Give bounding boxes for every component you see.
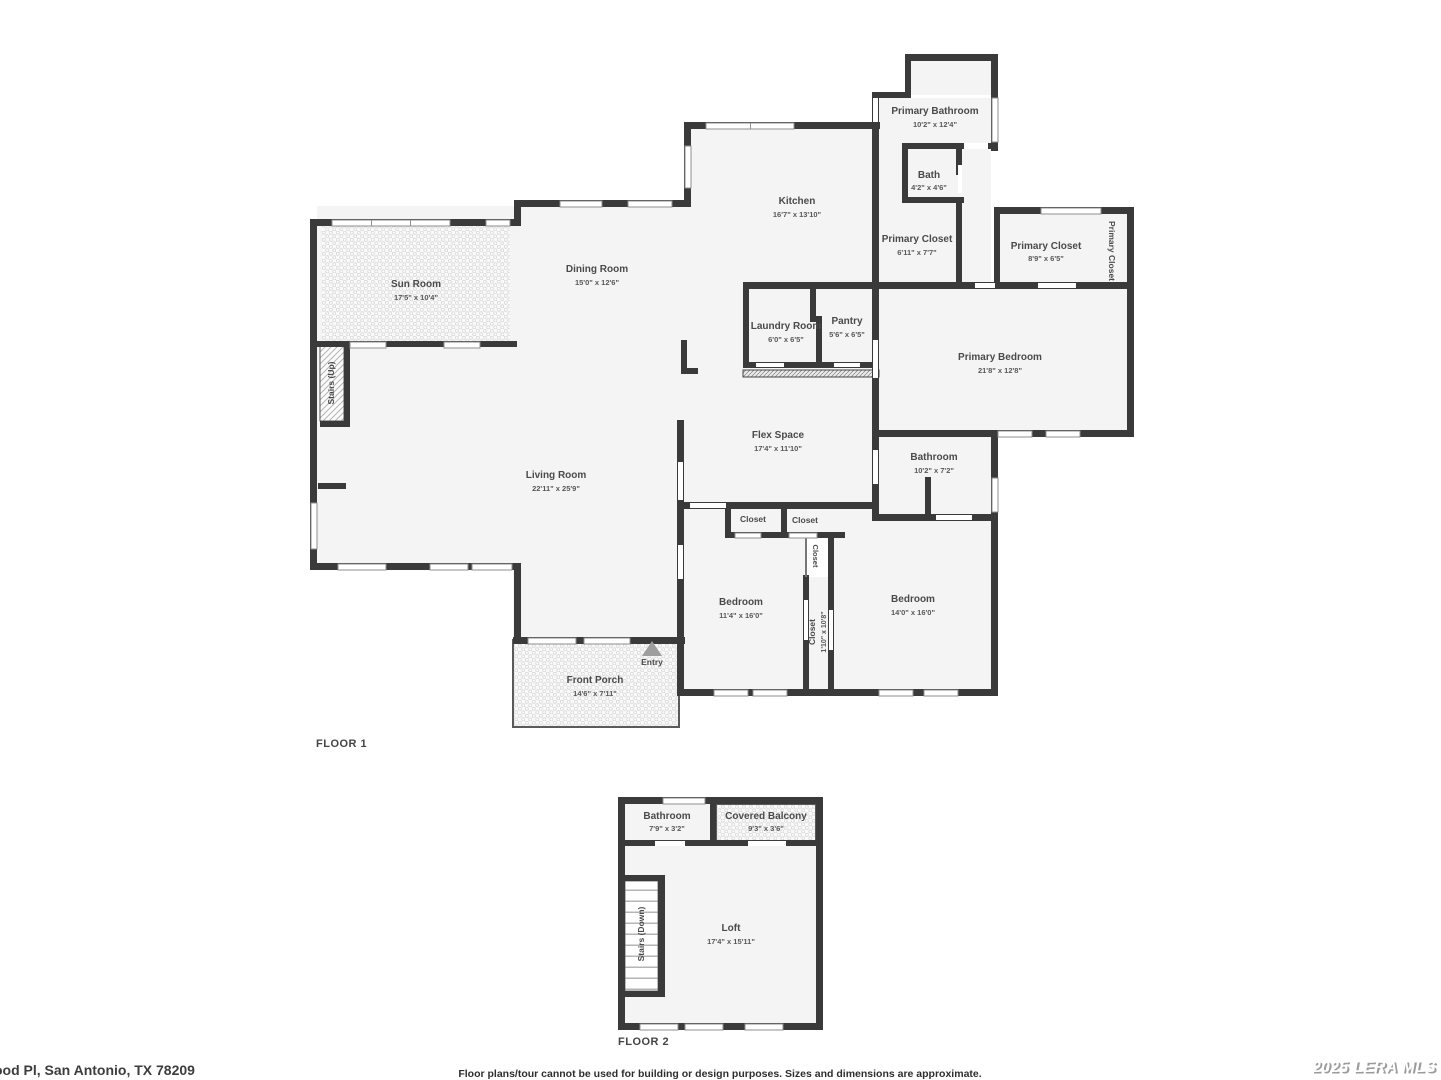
room-label-living-room: Living Room [526,470,587,481]
room-label-primary-bathroom: Primary Bathroom [891,106,978,117]
room-label-primary-bedroom: Primary Bedroom [958,352,1042,363]
floor2-title: FLOOR 2 [618,1036,669,1048]
room-dims-bedroom-1: 11'4" x 16'0" [719,611,763,620]
wall-segment [872,514,998,521]
room-label-stairs-down: Stairs (Down) [636,906,646,961]
wall-segment [344,341,350,427]
room-label-laundry-room: Laundry Room [751,321,822,332]
room-dims-bathroom-f1: 10'2" x 7'2" [914,466,954,475]
window-mullion [371,220,372,226]
window [486,220,510,226]
window [472,564,512,570]
room-label-closet-d: Closet [807,619,817,645]
wall-segment [621,875,665,881]
floor1-title: FLOOR 1 [316,738,367,750]
window [789,533,817,538]
room-label-loft: Loft [722,923,742,934]
address-text: ood Pl, San Antonio, TX 78209 [0,1062,195,1078]
room-dims-bath: 4'2" x 4'6" [911,183,947,192]
room-fill [879,146,991,286]
room-fill [680,345,874,505]
room-dims-primary-closet-1: 6'11" x 7'7" [897,248,937,257]
door-gap [1038,283,1076,288]
room-label-covered-balcony: Covered Balcony [725,811,807,822]
window [640,1024,678,1030]
room-dims-dining-room: 15'0" x 12'6" [575,278,619,287]
window [735,533,761,538]
door-gap [873,450,878,484]
window [338,564,386,570]
thin-wall-segment [805,535,807,577]
window [685,1024,723,1030]
wall-segment [710,797,716,846]
window [992,98,998,142]
wall-segment [994,207,1000,288]
window [560,201,602,207]
footer-bar: ood Pl, San Antonio, TX 78209 Floor plan… [0,1059,1438,1080]
door-gap [958,165,962,193]
room-dims-flex-space: 17'4" x 11'10" [754,444,802,453]
room-label-kitchen: Kitchen [779,196,816,207]
window [528,638,576,644]
window [745,1024,783,1030]
wall-segment [318,483,346,489]
window [879,690,913,696]
wall-segment [874,92,911,98]
room-label-bath: Bath [918,170,940,181]
door-gap [756,363,784,367]
door-gap [964,143,988,149]
room-label-stairs-up: Stairs (Up) [326,361,336,404]
wall-segment [320,421,350,427]
floorplan-image: Sun Room 17'5" x 10'4" Dining Room 15'0"… [0,0,1441,1080]
window [714,690,748,696]
wall-segment [681,368,698,374]
wall-segment [905,54,997,61]
wall-segment [677,420,684,640]
room-label-front-porch: Front Porch [567,675,624,686]
wall-segment [925,477,931,515]
window [1046,431,1080,437]
watermark-text: 2025 LERA MLS [1311,1059,1436,1076]
room-label-bedroom-1: Bedroom [719,597,763,608]
porch-hatch [716,804,816,841]
room-label-bathroom-f1: Bathroom [910,452,957,463]
window [584,638,630,644]
door-gap [873,98,878,122]
room-label-bathroom-f2: Bathroom [643,811,690,822]
room-label-primary-closet-2: Primary Closet [1011,241,1082,252]
window [430,564,468,570]
disclaimer-text: Floor plans/tour cannot be used for buil… [458,1068,981,1080]
window [311,503,317,549]
window [350,342,386,348]
room-dims-kitchen: 16'7" x 13'10" [773,210,822,219]
door-gap [936,515,972,520]
window [753,690,787,696]
room-fill [911,61,991,95]
wall-segment [956,197,962,288]
room-label-closet-c: Closet [811,545,820,568]
wall-segment [618,797,823,804]
wall-segment [514,563,521,644]
door-gap [834,363,860,367]
wall-segment [872,282,1134,289]
wall-segment [310,341,517,347]
wall-segment [658,875,665,997]
window [444,342,480,348]
room-dims-primary-closet-2: 8'9" x 6'5" [1028,254,1064,263]
wall-segment [872,122,879,288]
window [1041,208,1101,214]
room-dims-covered-balcony: 9'3" x 3'6" [748,824,784,833]
room-dims-sun-room: 17'5" x 10'4" [394,293,438,302]
room-dims-bedroom-2: 14'0" x 16'0" [891,608,935,617]
door-gap [655,841,685,846]
room-dims-front-porch: 14'6" x 7'11" [573,689,617,698]
wall-segment [816,797,823,1030]
room-dims-closet-d: 1'10" x 10'8" [821,611,828,652]
hatched-wall-strip [743,370,879,377]
room-dims-living-room: 22'11" x 25'9" [532,484,580,493]
room-dims-primary-bathroom: 10'2" x 12'4" [913,120,957,129]
door-gap [748,841,786,846]
window [628,201,672,207]
window-mullion [750,123,751,129]
door-gap [690,503,726,508]
wall-segment [1127,207,1134,437]
room-fill [879,437,992,516]
room-dims-laundry-room: 6'0" x 6'5" [768,335,804,344]
room-label-closet-a: Closet [740,514,766,524]
wall-segment [618,840,823,846]
wall-segment [621,991,665,997]
door-gap [678,545,683,579]
wall-segment [902,197,964,203]
room-label-pantry: Pantry [831,316,863,327]
wall-segment [991,437,998,695]
window [685,146,691,188]
room-dims-bathroom-f2: 7'9" x 3'2" [649,824,685,833]
door-gap [975,283,995,288]
window [663,798,705,804]
room-dims-primary-bedroom: 21'8" x 12'8" [978,366,1022,375]
window [332,220,450,226]
room-dims-loft: 17'4" x 15'11" [707,937,755,946]
room-dims-pantry: 5'6" x 6'5" [829,330,865,339]
room-label-dining-room: Dining Room [566,264,628,275]
window [992,478,998,512]
room-label-primary-closet-1: Primary Closet [882,234,953,245]
room-label-flex-space: Flex Space [752,430,805,441]
wall-segment [677,637,684,696]
door-gap [678,462,683,500]
room-fills-layer [317,61,1127,1025]
room-label-sun-room: Sun Room [391,279,441,290]
room-label-closet-b: Closet [792,515,818,525]
wall-segment [902,143,908,203]
room-label-bedroom-2: Bedroom [891,594,935,605]
window [998,431,1032,437]
room-label-entry: Entry [641,657,663,667]
room-label-primary-closet-3: Primary Closet [1107,221,1117,281]
door-gap [829,610,833,650]
window [924,690,958,696]
door-gap [873,340,878,378]
wall-segment [743,282,749,368]
window-mullion [410,220,411,226]
